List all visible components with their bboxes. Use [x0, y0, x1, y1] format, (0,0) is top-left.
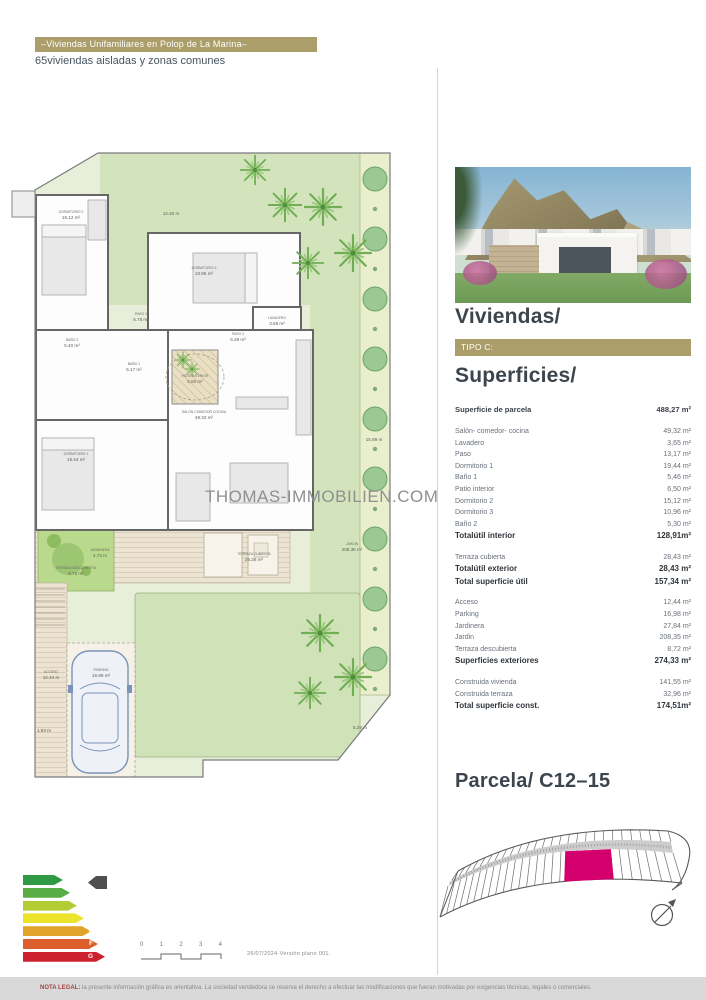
surface-row-value: 208,35 m²: [659, 632, 691, 644]
surface-row: Paso13,17 m²: [455, 449, 691, 461]
surface-row-value: 128,91m²: [657, 530, 691, 543]
surface-row-value: 19,44 m²: [663, 461, 691, 473]
surface-row-value: 49,32 m²: [663, 426, 691, 438]
energy-row-C: C: [23, 901, 105, 911]
energy-arrow-E: E: [23, 926, 91, 936]
north-arrow-icon: [652, 899, 677, 926]
surface-group: Salón- comedor- cocina49,32 m²Lavadero3,…: [455, 426, 691, 543]
plan-room-name: PASO 1: [135, 312, 147, 316]
surface-row: Dormitorio 215,12 m²: [455, 496, 691, 508]
plan-room-name: PATIO INTERIOR: [182, 374, 209, 378]
surface-row-value: 157,34 m²: [655, 576, 691, 589]
surface-row: Baño 25,30 m²: [455, 519, 691, 531]
plan-room-name: PASO 2: [232, 332, 244, 336]
site-plan: [438, 793, 700, 943]
legal-note-prefix: NOTA LEGAL:: [40, 985, 80, 991]
plan-room-area: 6.50 m²: [187, 379, 203, 384]
surface-row-label: Acceso: [455, 597, 478, 609]
surface-row-value: 15,12 m²: [663, 496, 691, 508]
surface-group: Construida vivienda141,55 m²Construida t…: [455, 677, 691, 713]
surface-table: Superficie de parcela 488,27 m² Salón- c…: [455, 404, 691, 722]
palm-silhouette: [455, 167, 483, 257]
energy-arrow-B: B: [23, 888, 70, 898]
plan-room-area: 5.29 m: [353, 725, 367, 730]
scale-bar-numbers: 01234: [140, 942, 222, 948]
viviendas-heading: Viviendas/: [455, 305, 561, 329]
plan-room-area: 6.78 m²: [133, 317, 149, 322]
surface-row-label: Baño 1: [455, 472, 477, 484]
parcel-area-value: 488,27 m²: [656, 404, 691, 416]
surface-row: Total superficie const.174,51m²: [455, 700, 691, 713]
surface-row: Construida terraza32,96 m²: [455, 689, 691, 701]
plan-room-area: 49.32 m²: [195, 415, 214, 420]
surface-row-value: 174,51m²: [657, 700, 691, 713]
plan-room-name: PARKING: [93, 668, 108, 672]
plan-room-area: 19.44 m²: [67, 457, 86, 462]
plan-room-area: 26.28 m²: [245, 557, 264, 562]
surface-row-value: 274,33 m²: [655, 655, 691, 668]
energy-letter: E: [89, 926, 93, 936]
energy-row-D: D: [23, 913, 105, 923]
energy-rating-chart: ABCDEFG: [23, 875, 105, 965]
surface-row-label: Dormitorio 3: [455, 507, 493, 519]
surface-row: Patio interior6,50 m²: [455, 484, 691, 496]
energy-letter: C: [88, 901, 93, 911]
palm-tree: [302, 615, 338, 651]
energy-arrow-A: A: [23, 875, 63, 885]
plan-room-area: 208.35 m²: [342, 547, 363, 552]
surface-row-value: 10,96 m²: [663, 507, 691, 519]
surface-row-label: Patio interior: [455, 484, 494, 496]
energy-letter: G: [88, 952, 93, 962]
surface-row: Parking16,98 m²: [455, 609, 691, 621]
surface-row: Construida vivienda141,55 m²: [455, 677, 691, 689]
date-version: 26/07/2024·Versión plano 001.: [247, 951, 331, 957]
plan-room-area: 15.12 m²: [62, 215, 81, 220]
surface-row-value: 12,44 m²: [663, 597, 691, 609]
palm-tree: [293, 248, 324, 279]
scale-number: 3: [199, 942, 202, 948]
project-subtitle: 65viviendas aisladas y zonas comunes: [35, 55, 225, 67]
palm-tree: [335, 659, 371, 695]
surface-row-label: Totalútil exterior: [455, 563, 517, 576]
scale-number: 0: [140, 942, 143, 948]
surface-group: Acceso12,44 m²Parking16,98 m²Jardinera27…: [455, 597, 691, 667]
energy-arrow-C: C: [23, 901, 77, 911]
plan-room-name: JARDIN: [346, 542, 359, 546]
plan-room-name: BAÑO 2: [66, 337, 79, 342]
plan-room-name: SALÓN COMEDOR COCINA: [182, 409, 227, 414]
surface-row: Acceso12,44 m²: [455, 597, 691, 609]
surface-row: Dormitorio 310,96 m²: [455, 507, 691, 519]
plan-room-area: 1.93 m: [37, 728, 51, 733]
surface-row-label: Terraza cubierta: [455, 552, 505, 564]
parcel-area-row: Superficie de parcela 488,27 m²: [455, 404, 691, 416]
surface-row: Terraza descubierta8,72 m²: [455, 644, 691, 656]
surface-row: Jardin208,35 m²: [455, 632, 691, 644]
scale-number: 1: [160, 942, 163, 948]
palm-tree: [335, 235, 371, 271]
plan-room-area: 10.95 m²: [195, 271, 214, 276]
plan-room-area: 5.17 m²: [126, 367, 142, 372]
surface-row-value: 32,96 m²: [663, 689, 691, 701]
floor-plan-drawing: DORMITORIO 215.12 m²12.40 mDORMITORIO 31…: [8, 145, 433, 795]
surface-row-value: 16,98 m²: [663, 609, 691, 621]
surface-row: Baño 15,46 m²: [455, 472, 691, 484]
palm-tree: [305, 189, 341, 225]
plan-room-area: 4.73 m: [93, 553, 107, 558]
energy-row-B: B: [23, 888, 105, 898]
surface-row-value: 5,46 m²: [667, 472, 691, 484]
surface-row-label: Total superficie útil: [455, 576, 528, 589]
palm-tree: [241, 156, 270, 185]
parcela-heading: Parcela/ C12–15: [455, 770, 610, 793]
energy-row-G: G: [23, 952, 105, 962]
surface-row: Salón- comedor- cocina49,32 m²: [455, 426, 691, 438]
parcel-area-label: Superficie de parcela: [455, 404, 531, 416]
palm-tree: [295, 678, 326, 709]
surface-row-label: Jardin: [455, 632, 474, 644]
surface-row-value: 6,50 m²: [667, 484, 691, 496]
surface-row-label: Construida vivienda: [455, 677, 516, 689]
surface-row-label: Superficies exteriores: [455, 655, 539, 668]
scale-number: 2: [179, 942, 182, 948]
plan-room-area: 12.44 m: [43, 675, 60, 680]
surface-row-value: 5,30 m²: [667, 519, 691, 531]
scale-bar: [140, 950, 224, 962]
surface-row: Dormitorio 119,44 m²: [455, 461, 691, 473]
surface-row-label: Construida terraza: [455, 689, 513, 701]
legal-note-text: la presente información gráfica es orien…: [80, 985, 591, 991]
plan-room-area: 6.39 m²: [230, 337, 246, 342]
watermark: THOMAS-IMMOBILIEN.COM: [205, 487, 438, 507]
plan-room-name: DORMITORIO 3: [192, 266, 217, 270]
energy-arrow-G: G: [23, 952, 105, 962]
surface-row-value: 141,55 m²: [659, 677, 691, 689]
energy-row-F: F: [23, 939, 105, 949]
plan-room-name: LAVADERO: [268, 316, 286, 320]
project-title-bar: –Viviendas Unifamiliares en Polop de La …: [35, 37, 317, 52]
plan-room-name: JARDINERA: [90, 548, 110, 552]
surface-row-label: Parking: [455, 609, 479, 621]
legal-note: NOTA LEGAL: la presente información gráf…: [0, 977, 706, 1000]
plan-room-name: DORMITORIO 1: [64, 452, 89, 456]
surface-row-value: 8,72 m²: [667, 644, 691, 656]
scale-number: 4: [219, 942, 222, 948]
floor-plan: DORMITORIO 215.12 m²12.40 mDORMITORIO 31…: [8, 145, 433, 795]
plan-room-name: TERRAZA CUBIERTA: [237, 552, 271, 556]
plan-room-area: 8.72 m²: [68, 571, 84, 576]
surface-group: Terraza cubierta28,43 m²Totalútil exteri…: [455, 552, 691, 589]
plan-room-area: 3.65 m²: [269, 321, 285, 326]
plan-room-area: 16.98 m²: [92, 673, 111, 678]
energy-arrow-F: F: [23, 939, 98, 949]
energy-row-E: E: [23, 926, 105, 936]
plan-room-name: ACCESO: [44, 670, 59, 674]
surface-row: Totalútil interior128,91m²: [455, 530, 691, 543]
surface-row: Superficies exteriores274,33 m²: [455, 655, 691, 668]
energy-letter: D: [88, 913, 93, 923]
plan-room-area: 12.40 m: [163, 211, 180, 216]
plan-room-area: 15.89 m: [366, 437, 383, 442]
plan-room-name: BAÑO 1: [128, 361, 141, 366]
superficies-heading: Superficies/: [455, 364, 576, 388]
surface-row-label: Salón- comedor- cocina: [455, 426, 529, 438]
palm-tree: [269, 189, 301, 221]
surface-row-value: 28,43 m²: [659, 563, 691, 576]
energy-arrow-D: D: [23, 913, 84, 923]
plan-room-area: 5.40 m²: [64, 343, 80, 348]
surface-row: Total superficie útil157,34 m²: [455, 576, 691, 589]
surface-row-value: 27,84 m²: [663, 621, 691, 633]
surface-row: Totalútil exterior28,43 m²: [455, 563, 691, 576]
type-badge: TIPO C:: [455, 339, 691, 356]
surface-row-label: Jardinera: [455, 621, 484, 633]
surface-row: Jardinera27,84 m²: [455, 621, 691, 633]
surface-row: Terraza cubierta28,43 m²: [455, 552, 691, 564]
energy-letter: B: [88, 888, 93, 898]
surface-row-label: Total superficie const.: [455, 700, 539, 713]
plan-room-name: DORMITORIO 2: [59, 210, 84, 214]
surface-row-label: Dormitorio 2: [455, 496, 493, 508]
surface-row-label: Lavadero: [455, 438, 484, 450]
energy-letter: F: [89, 939, 93, 949]
surface-row-label: Totalútil interior: [455, 530, 515, 543]
surface-row-label: Paso: [455, 449, 471, 461]
surface-row-label: Baño 2: [455, 519, 477, 531]
pink-bush: [645, 259, 687, 289]
surface-row-label: Terraza descubierta: [455, 644, 516, 656]
surface-row-value: 13,17 m²: [663, 449, 691, 461]
surface-row-label: Dormitorio 1: [455, 461, 493, 473]
highlighted-parcel: [564, 849, 613, 881]
surface-row-value: 28,43 m²: [663, 552, 691, 564]
surface-row-value: 3,65 m²: [667, 438, 691, 450]
plan-room-name: TERRAZA DESCUBIERTA: [56, 566, 97, 570]
villa-photo: [455, 167, 691, 303]
pink-bush: [463, 261, 497, 285]
surface-row: Lavadero3,65 m²: [455, 438, 691, 450]
